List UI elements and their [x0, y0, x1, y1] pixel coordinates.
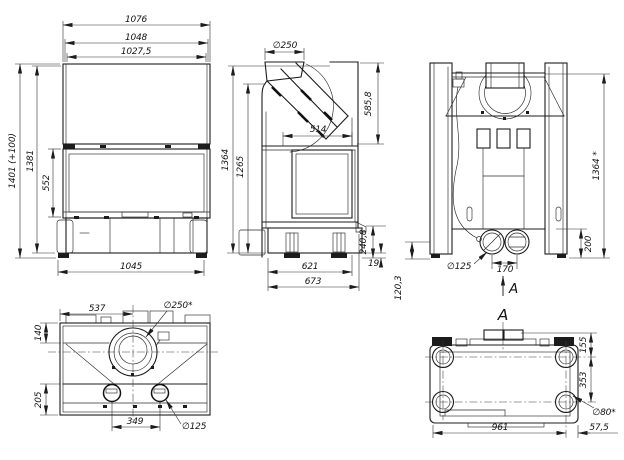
rear-conn-height-dim: 200: [584, 235, 594, 252]
fireplace-dimension-drawing: 1076 1048 1027,5 1401 (+100) 1381 552 10…: [0, 0, 624, 460]
top-outlet-spacing-dim: 349: [127, 417, 144, 427]
side-feet-height-dim: 19: [368, 259, 380, 269]
bottom-feet-span-dim: 353: [579, 371, 589, 388]
side-height-mid-dim: 1265: [236, 155, 246, 178]
top-outlet-dia-dim: ∅125: [182, 422, 207, 432]
technical-drawing-page: 1076 1048 1027,5 1401 (+100) 1381 552 10…: [0, 0, 624, 460]
front-base-width-dim: 1045: [120, 262, 143, 272]
top-flue-dia-dim: ∅250*: [164, 301, 193, 311]
side-flue-dia-dim: ∅250: [273, 41, 298, 51]
top-front-offset-dim: 140: [34, 324, 44, 341]
rear-conn-dia-dim: ∅125: [447, 262, 472, 272]
bottom-side-offset-dim: 57,5: [589, 423, 609, 433]
section-view-title: A: [497, 306, 508, 324]
rear-conn-spacing-dim: 170: [497, 265, 514, 275]
side-total-depth-dim: 673: [305, 277, 322, 287]
bottom-foot-dia-dim: ∅80*: [593, 408, 617, 418]
side-plenum-height-dim: 240,8: [359, 229, 369, 254]
background: [0, 0, 624, 460]
side-base-depth-dim: 621: [302, 262, 319, 272]
front-door-height-dim: 552: [42, 174, 52, 191]
side-flue-height-dim: 585,8: [364, 91, 374, 116]
bottom-width-dim: 961: [492, 423, 509, 433]
side-height-total-dim: 1364: [221, 148, 231, 171]
bottom-rear-offset-dim: 155: [579, 336, 589, 353]
rear-drain-height-dim: 120,3: [394, 275, 404, 300]
front-width-mid-dim: 1048: [125, 33, 148, 43]
section-arrow-label: A: [508, 281, 518, 297]
top-flue-offset-dim: 537: [89, 304, 106, 314]
front-height-total-dim: 1401 (+100): [8, 133, 18, 188]
front-width-inner-dim: 1027,5: [121, 47, 152, 57]
front-height-body-dim: 1381: [26, 150, 36, 172]
rear-height-total-dim: 1364 *: [592, 151, 602, 181]
side-depth-top-dim: 514: [310, 125, 327, 135]
front-width-outer-dim: 1076: [125, 15, 148, 25]
top-rear-offset-dim: 205: [34, 391, 44, 408]
